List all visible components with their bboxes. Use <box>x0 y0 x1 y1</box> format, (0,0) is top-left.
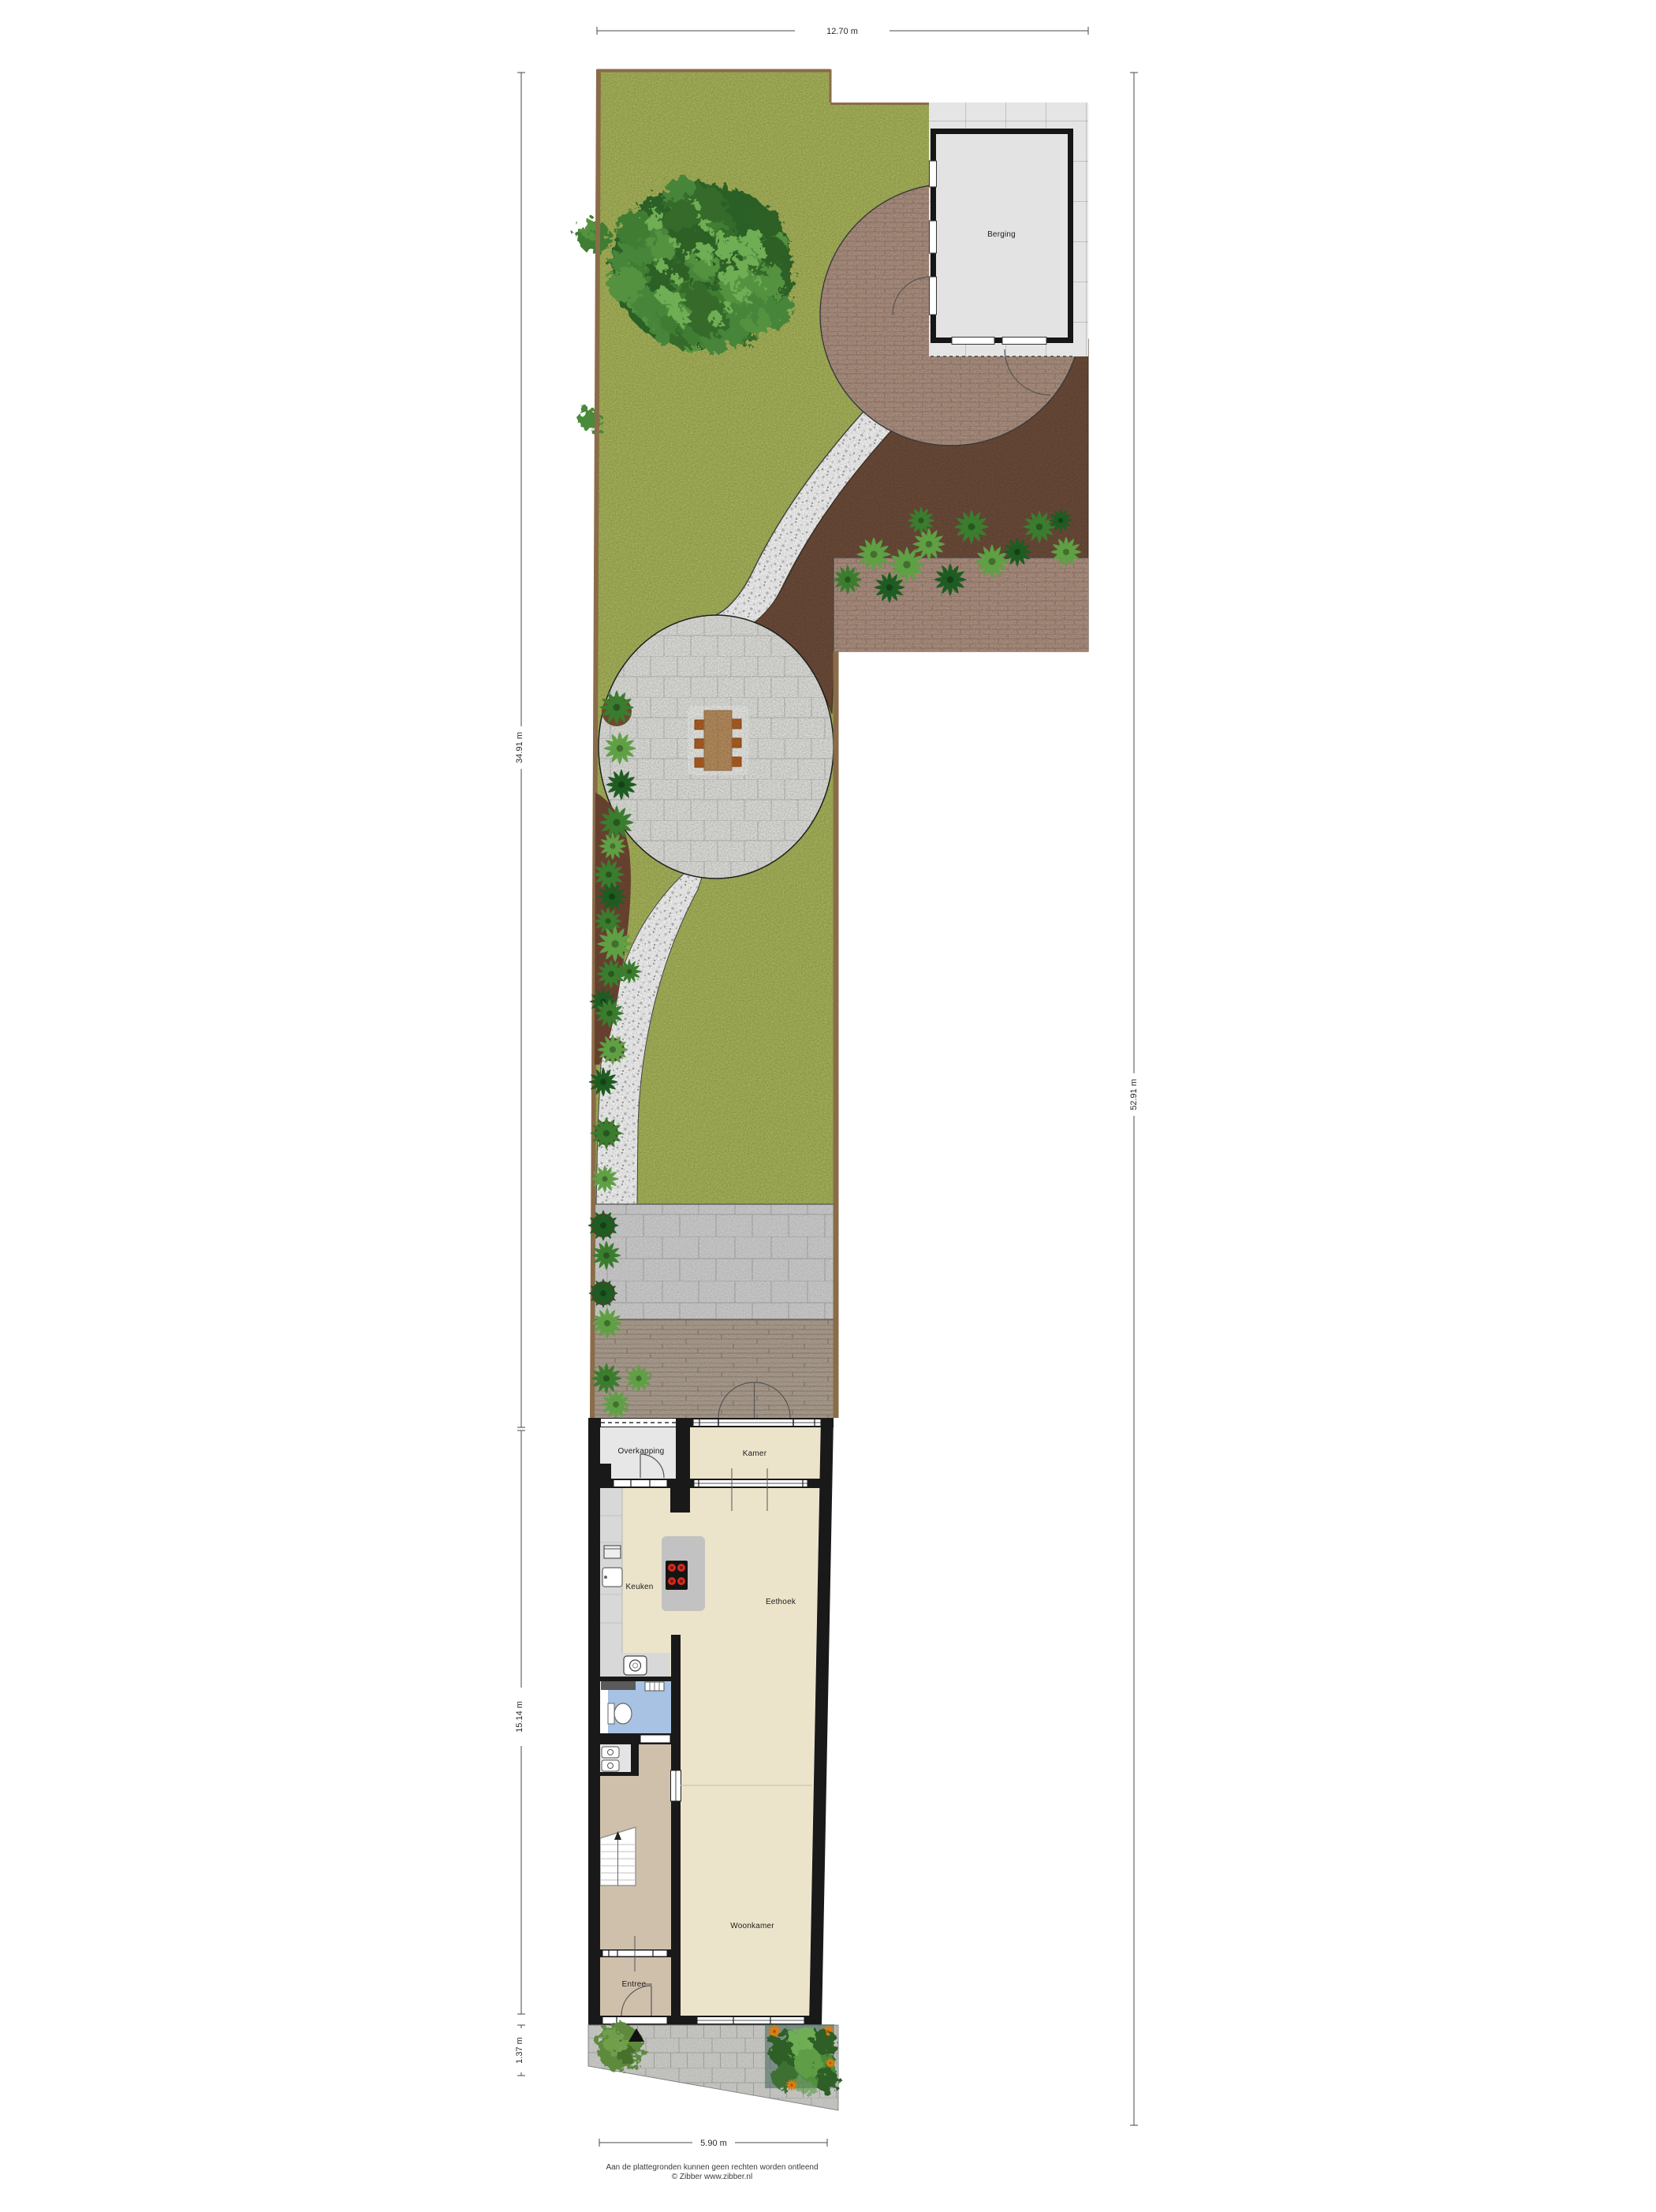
svg-text:12.70 m: 12.70 m <box>826 27 858 36</box>
svg-text:Kamer: Kamer <box>743 1449 767 1458</box>
svg-text:Eethoek: Eethoek <box>766 1598 796 1606</box>
svg-text:© Zibber www.zibber.nl: © Zibber www.zibber.nl <box>672 2173 752 2181</box>
svg-text:Overkapping: Overkapping <box>618 1447 665 1456</box>
svg-text:15.14 m: 15.14 m <box>515 1701 524 1733</box>
svg-text:1.37 m: 1.37 m <box>515 2037 524 2064</box>
svg-text:Entree: Entree <box>622 1980 647 1989</box>
svg-text:5.90 m: 5.90 m <box>700 2139 727 2148</box>
svg-text:Keuken: Keuken <box>625 1583 653 1591</box>
svg-text:Berging: Berging <box>987 230 1016 239</box>
svg-text:Woonkamer: Woonkamer <box>730 1922 774 1930</box>
svg-text:Aan de plattegronden kunnen ge: Aan de plattegronden kunnen geen rechten… <box>606 2163 818 2172</box>
svg-text:34.91 m: 34.91 m <box>515 732 524 763</box>
svg-text:52.91 m: 52.91 m <box>1129 1079 1139 1110</box>
